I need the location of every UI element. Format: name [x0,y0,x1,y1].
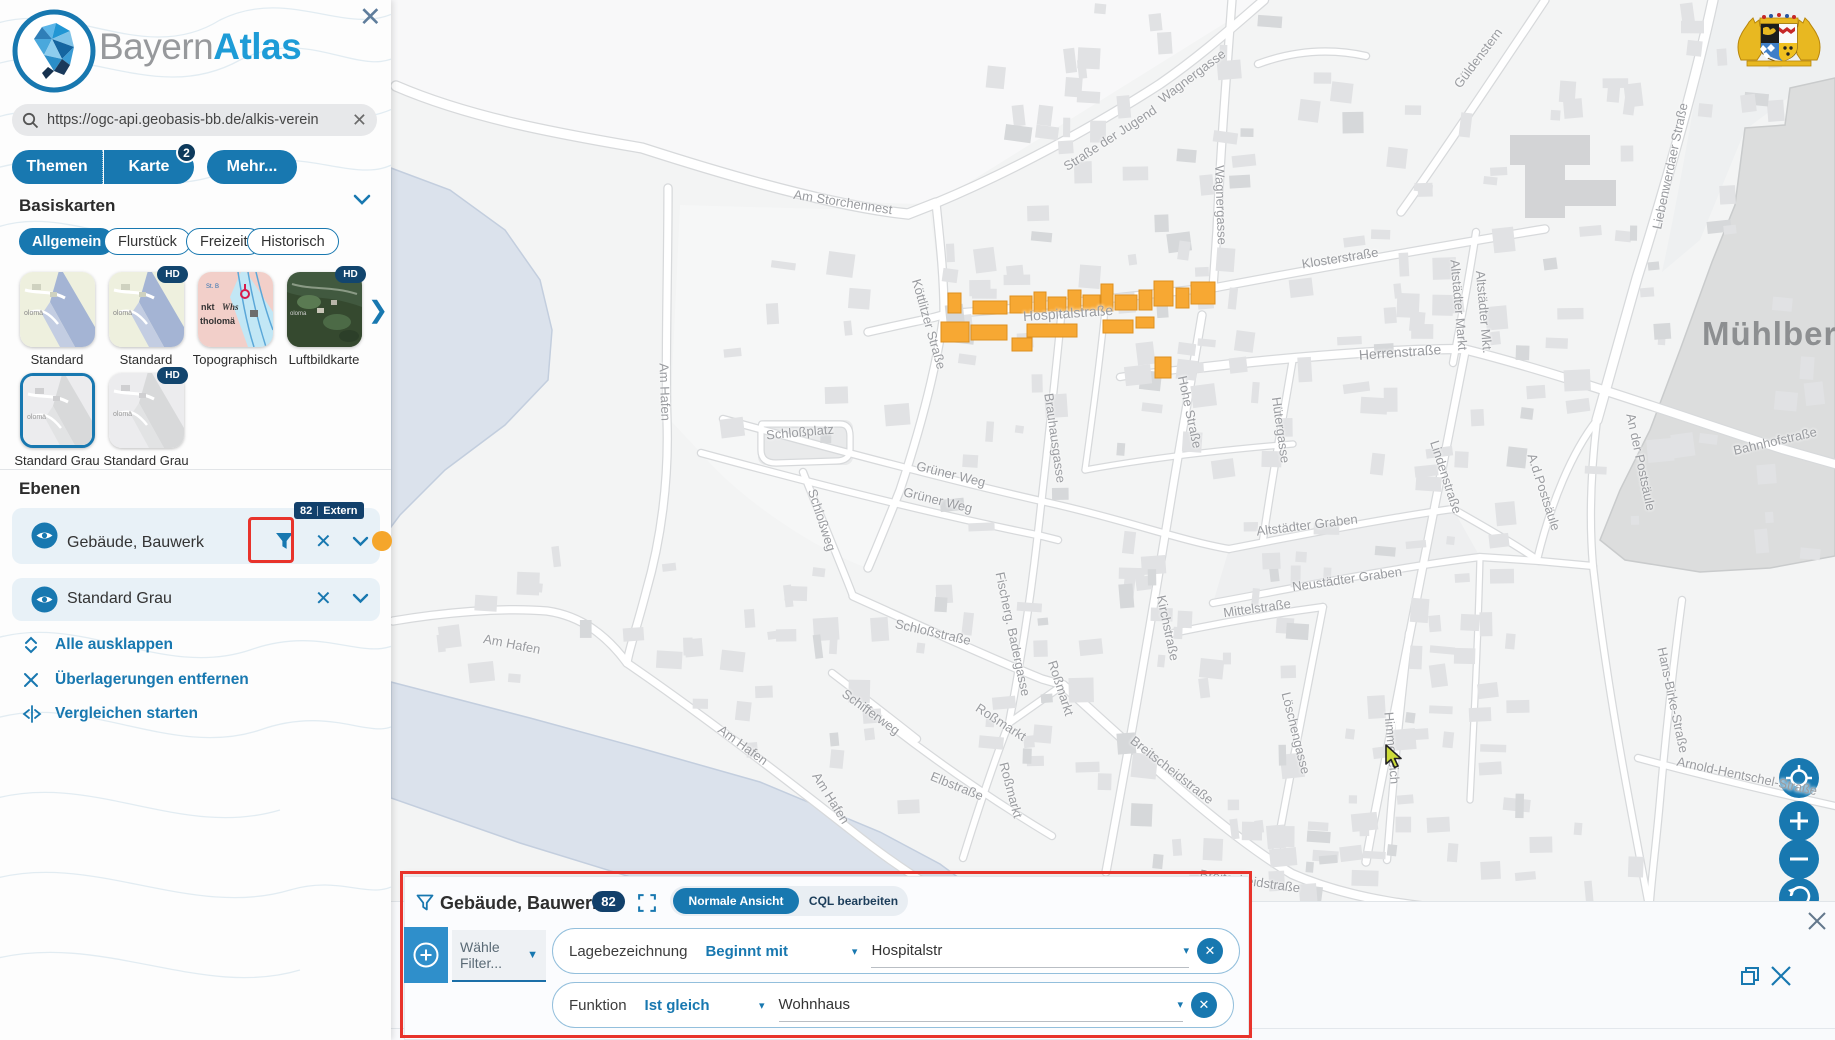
tab-themen[interactable]: Themen [12,150,103,184]
search-bar[interactable]: https://ogc-api.geobasis-bb.de/alkis-ver… [12,104,377,136]
svg-text:Whs: Whs [222,302,239,312]
basemap-thumb-standard-grau[interactable]: olomä [109,373,184,448]
search-input[interactable]: https://ogc-api.geobasis-bb.de/alkis-ver… [47,112,344,128]
remove-layer-icon[interactable]: ✕ [315,532,332,552]
karte-count-badge: 2 [176,142,197,163]
filter-panel-title: Gebäude, Bauwerk [440,893,602,914]
remove-filter-button[interactable]: ✕ [1191,992,1217,1018]
collapse-basiskarten-icon[interactable] [352,193,372,207]
svg-text:tholomä: tholomä [200,316,236,326]
highlighted-building[interactable] [1191,282,1215,304]
crest-shield [1760,24,1797,62]
layer-visibility-icon[interactable] [31,522,58,549]
chevron-down-icon: ▾ [759,999,765,1012]
bavaria-coat-of-arms [1733,8,1825,72]
remove-overlays-icon[interactable] [22,671,40,689]
highlighted-building[interactable] [1101,284,1113,311]
divider [0,469,391,470]
layer-color-handle [372,531,392,551]
zoom-out-button[interactable] [1779,839,1819,879]
chevron-down-icon: ▾ [1183,944,1189,957]
mouse-cursor [1384,744,1406,770]
category-pill-flurstück[interactable]: Flurstück [104,228,191,255]
place-label: Mühlberg [1702,315,1835,353]
expand-icon[interactable] [638,894,656,912]
link-vergleichen-starten[interactable]: Vergleichen starten [55,705,198,723]
basemap-thumb-standard[interactable]: olomä [109,272,184,347]
filter-field-label: Funktion [569,997,627,1014]
basiskarten-heading: Basiskarten [19,196,115,216]
highlighted-building[interactable] [1154,281,1173,306]
hd-badge: HD [157,266,188,283]
link-alle-ausklappen[interactable]: Alle ausklappen [55,636,173,654]
svg-text:olomä: olomä [24,310,43,317]
category-pill-historisch[interactable]: Historisch [247,228,339,255]
plus-circle-icon [412,941,440,969]
operator-dropdown[interactable]: Beginnt mit ▾ [705,943,857,960]
close-sidebar-icon[interactable]: ✕ [359,4,382,31]
layer-visibility-icon[interactable] [31,586,58,613]
filter-icon [416,894,434,912]
add-filter-button[interactable] [404,927,448,983]
thumbnails-next-icon[interactable]: ❯ [368,296,388,325]
view-toggle: Normale Ansicht CQL bearbeiten [670,886,908,916]
value-input[interactable]: Wohnhaus ▾ [779,988,1183,1022]
operator-value: Beginnt mit [705,943,851,960]
basemap-thumb-label: Topographisch [192,352,278,367]
svg-text:olomä: olomä [27,414,46,421]
chevron-down-icon: ▾ [1177,998,1183,1011]
highlighted-building[interactable] [1048,297,1066,311]
svg-text:olomä: olomä [113,310,132,317]
crest-base [1747,61,1811,66]
tab-mehr[interactable]: Mehr... [207,150,297,184]
link-ueberlagerungen-entfernen[interactable]: Überlagerungen entfernen [55,671,249,689]
basemap-thumb-standard[interactable]: olomä [20,272,95,347]
svg-text:St. B: St. B [206,284,219,290]
layer-filter-icon[interactable] [275,532,294,551]
highlighted-building[interactable] [973,301,1007,314]
bayernatlas-logo [12,9,96,93]
highlighted-building[interactable] [1010,296,1032,313]
value-text: Wohnhaus [779,996,1178,1013]
bayernatlas-app: WagnergasseWagnergasseStraße der JugendA… [0,0,1835,1040]
basemap-thumb-label: Standard [14,352,100,367]
value-text: Hospitalstr [871,942,1183,959]
filter-select-placeholder: Wähle Filter... [460,939,527,971]
toggle-normale-ansicht[interactable]: Normale Ansicht [673,888,799,914]
operator-value: Ist gleich [645,997,759,1014]
highlighted-building[interactable] [1176,288,1189,308]
highlighted-building[interactable] [1103,320,1133,333]
crest-lion-left [1738,18,1763,60]
layer-row-standard-grau: Standard Grau ✕ [12,578,380,621]
crest-crown [1760,13,1798,24]
highlighted-building[interactable] [1012,338,1032,351]
window-restore-icon[interactable] [1740,966,1760,986]
highlighted-building[interactable] [941,322,969,342]
search-icon [22,112,39,129]
svg-text:nkt: nkt [201,302,215,312]
filter-row-lagebezeichnung: Lagebezeichnung Beginnt mit ▾ Hospitalst… [552,928,1240,974]
basemap-thumb-luftbildkarte[interactable]: oloma [287,272,362,347]
highlighted-building[interactable] [1027,324,1077,337]
basemap-thumb-label: Standard Grau [14,453,100,468]
chevron-down-icon: ▾ [852,945,858,958]
expand-all-icon[interactable] [22,636,40,654]
sidebar: ✕ BayernAtlas https:/ [0,0,391,1040]
layer-chevron-icon[interactable] [352,536,369,547]
hd-badge: HD [157,367,188,384]
highlighted-building[interactable] [1034,292,1046,312]
locate-button[interactable] [1779,758,1819,798]
basemap-thumb-label: Luftbildkarte [281,352,367,367]
chevron-down-icon: ▼ [527,949,538,961]
layer-chevron-icon[interactable] [352,593,369,604]
highlighted-building[interactable] [971,325,1007,340]
basemap-thumb-label: Standard Grau [103,453,189,468]
filter-select-dropdown[interactable]: Wähle Filter... ▼ [452,930,546,982]
toggle-cql-bearbeiten[interactable]: CQL bearbeiten [799,894,908,908]
highlighted-building[interactable] [1136,317,1154,328]
hd-badge: HD [335,266,366,283]
ebenen-heading: Ebenen [19,479,80,499]
layer-extern-badge: 82Extern [294,502,364,519]
compare-icon[interactable] [22,705,42,723]
remove-layer-icon[interactable]: ✕ [315,589,332,609]
highlighted-building[interactable] [1155,357,1171,378]
highlighted-building[interactable] [1083,295,1100,310]
value-input[interactable]: Hospitalstr ▾ [871,934,1189,968]
filter-field-label: Lagebezeichnung [569,943,687,960]
zoom-in-button[interactable] [1779,801,1819,841]
basemap-thumb-standard-grau[interactable]: olomä [20,373,95,448]
clear-search-icon[interactable]: ✕ [352,110,367,131]
result-count-badge: 82 [592,891,625,912]
highlighted-building[interactable] [1139,290,1152,310]
basemap-thumb-topographisch[interactable]: nktWhstholomäSt. B [198,272,273,347]
layer-name: Standard Grau [67,590,172,608]
highlighted-building[interactable] [1068,290,1081,311]
close-window-icon[interactable] [1768,963,1794,989]
operator-dropdown[interactable]: Ist gleich ▾ [645,997,765,1014]
app-title: BayernAtlas [99,26,301,68]
basemap-thumb-label: Standard [103,352,189,367]
filter-row-funktion: Funktion Ist gleich ▾ Wohnhaus ▾ ✕ [552,982,1234,1028]
category-pill-allgemein[interactable]: Allgemein [19,228,114,255]
close-panel-icon[interactable] [1806,910,1828,932]
crest-lion-right [1795,18,1820,60]
highlighted-building[interactable] [1115,295,1137,310]
highlighted-building[interactable] [948,293,961,313]
remove-filter-button[interactable]: ✕ [1197,938,1223,964]
layer-name: Gebäude, Bauwerk [67,534,204,552]
svg-text:oloma: oloma [290,311,307,317]
svg-text:olomä: olomä [113,411,132,418]
